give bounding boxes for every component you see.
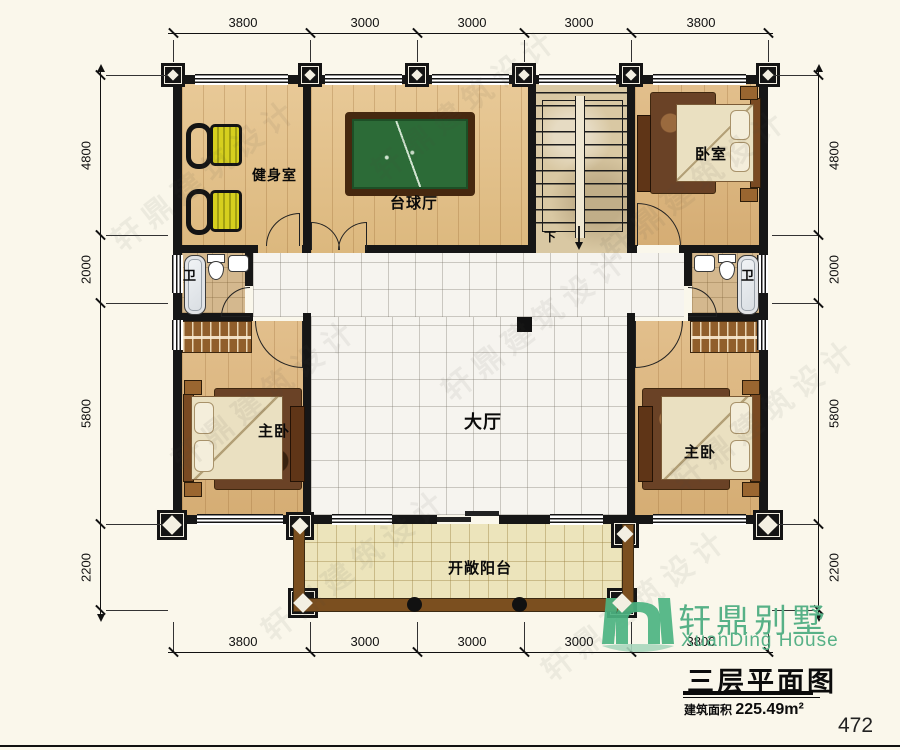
label-billiards: 台球厅 bbox=[390, 192, 438, 213]
stair-center-rail bbox=[575, 96, 585, 238]
plan-title-underline-thin bbox=[683, 697, 820, 698]
dim-top-5: 3800 bbox=[679, 15, 723, 30]
pillow-1-bedroom-top-right bbox=[730, 110, 750, 140]
exercise-bike-seat-2 bbox=[210, 190, 242, 232]
brand-logo-m-icon bbox=[598, 584, 678, 664]
corridor-floor bbox=[253, 253, 684, 317]
dim-top-2: 3000 bbox=[343, 15, 387, 30]
dim-ext-right-4 bbox=[772, 524, 818, 525]
tv-cabinet-master-right bbox=[638, 406, 653, 482]
area-value: 225.49m² bbox=[735, 701, 804, 718]
stair-arrow-line bbox=[578, 226, 580, 242]
label-balcony: 开敞阳台 bbox=[448, 557, 512, 578]
dim-ext-top-2 bbox=[310, 40, 311, 62]
label-master-right: 主卧 bbox=[684, 441, 716, 462]
nightstand-2-master-left bbox=[184, 482, 202, 497]
billiard-table bbox=[345, 112, 475, 196]
window-bottom-4 bbox=[653, 514, 746, 525]
label-gym: 健身室 bbox=[252, 165, 297, 185]
pillow-2-master-left bbox=[194, 440, 214, 472]
label-bath-left: 卫 bbox=[183, 265, 197, 284]
dim-right-3: 5800 bbox=[827, 392, 842, 436]
dim-top-4: 3000 bbox=[557, 15, 601, 30]
dim-ext-left-1 bbox=[106, 75, 168, 76]
dim-top-1: 3800 bbox=[221, 15, 265, 30]
wall-hall-right bbox=[627, 313, 635, 524]
plan-title-underline-thick bbox=[683, 691, 813, 695]
dim-left-1: 4800 bbox=[79, 134, 94, 178]
tv-cabinet-master-left bbox=[290, 406, 305, 482]
nightstand-2-bedroom-top-right bbox=[740, 188, 758, 202]
dim-top-3: 3000 bbox=[450, 15, 494, 30]
dim-ext-bot-4 bbox=[524, 622, 525, 652]
area-line: 建筑面积 225.49m² bbox=[684, 701, 804, 719]
dim-line-left bbox=[100, 72, 101, 615]
window-bottom-3 bbox=[550, 514, 603, 525]
label-hall: 大厅 bbox=[464, 408, 502, 434]
nightstand-1-bedroom-top-right bbox=[740, 86, 758, 100]
wall-mid-3 bbox=[365, 245, 536, 253]
nightstand-1-master-right bbox=[742, 380, 760, 395]
exercise-bike-frame-1 bbox=[186, 123, 212, 169]
wall-gym-billiards bbox=[303, 75, 311, 253]
wall-mid-2 bbox=[302, 245, 311, 253]
dim-left-3: 5800 bbox=[79, 392, 94, 436]
pillow-1-master-left bbox=[194, 402, 214, 434]
dim-ext-left-3 bbox=[106, 303, 168, 304]
pillow-2-master-right bbox=[730, 440, 750, 472]
window-bottom-2 bbox=[332, 514, 392, 525]
column-bottom-right bbox=[753, 510, 783, 540]
cabinet-bedroom-top-right bbox=[637, 115, 651, 192]
label-master-left: 主卧 bbox=[258, 420, 290, 441]
dim-ext-left-5 bbox=[106, 610, 168, 611]
wall-outer-left bbox=[173, 75, 182, 524]
dim-ext-bot-3 bbox=[417, 622, 418, 652]
brand-logo-icon bbox=[598, 584, 678, 664]
dim-ext-top-6 bbox=[768, 40, 769, 62]
dim-ext-right-2 bbox=[772, 235, 818, 236]
dim-ext-right-1 bbox=[772, 75, 818, 76]
dim-ext-top-3 bbox=[417, 40, 418, 62]
dim-bottom-1: 3800 bbox=[221, 634, 265, 649]
balcony-slider-leaf-2 bbox=[465, 511, 499, 516]
column-top-2 bbox=[298, 63, 322, 87]
area-label: 建筑面积 bbox=[684, 703, 732, 717]
stair-arrow-head bbox=[575, 242, 583, 250]
dim-ext-top-5 bbox=[631, 40, 632, 62]
dim-bottom-4: 3000 bbox=[557, 634, 601, 649]
page-number: 472 bbox=[838, 714, 873, 738]
window-left-2 bbox=[172, 320, 183, 350]
dim-right-1: 4800 bbox=[827, 134, 842, 178]
exercise-bike-frame-2 bbox=[186, 189, 212, 235]
label-stairs-down: 下 bbox=[544, 228, 557, 245]
nightstand-2-master-right bbox=[742, 482, 760, 497]
balcony-rail-bottom bbox=[293, 598, 634, 612]
bathtub-left bbox=[184, 255, 206, 315]
exercise-bike-seat-1 bbox=[210, 124, 242, 166]
column-top-3 bbox=[405, 63, 429, 87]
sink-left bbox=[228, 255, 249, 272]
balcony-slider-leaf-1 bbox=[437, 517, 471, 522]
wardrobe-right bbox=[690, 321, 761, 353]
window-bottom-1 bbox=[197, 514, 283, 525]
column-top-5 bbox=[619, 63, 643, 87]
dim-ext-right-3 bbox=[772, 303, 818, 304]
window-top-3 bbox=[432, 74, 509, 85]
dim-ext-top-4 bbox=[524, 40, 525, 62]
wall-mid-4 bbox=[627, 245, 637, 253]
dim-right-4: 2200 bbox=[827, 546, 842, 590]
wall-mid-1 bbox=[173, 245, 258, 253]
dim-line-right bbox=[818, 72, 819, 615]
dim-ext-top-1 bbox=[173, 40, 174, 62]
label-bath-right: 卫 bbox=[741, 265, 755, 284]
column-top-4 bbox=[512, 63, 536, 87]
page-bottom-rule bbox=[0, 745, 900, 747]
dim-right-2: 2000 bbox=[827, 248, 842, 292]
hall-column bbox=[517, 317, 532, 332]
wardrobe-left bbox=[182, 321, 252, 353]
dim-ext-left-4 bbox=[106, 524, 168, 525]
window-right-2 bbox=[757, 320, 768, 350]
dim-ext-left-2 bbox=[106, 235, 168, 236]
window-top-1 bbox=[195, 74, 288, 85]
floor-plan-page: 健身室 台球厅 卧室 卫 卫 主卧 主卧 大厅 开敞阳台 下 3800 3000… bbox=[0, 0, 900, 750]
pillow-1-master-right bbox=[730, 402, 750, 434]
sink-right bbox=[694, 255, 715, 272]
bathtub-right bbox=[737, 255, 759, 315]
window-top-2 bbox=[325, 74, 402, 85]
window-left-1 bbox=[172, 255, 183, 293]
window-top-5 bbox=[653, 74, 746, 85]
brand-name-en: XuanDing House bbox=[681, 630, 839, 652]
dim-left-4: 2200 bbox=[79, 546, 94, 590]
pillow-2-bedroom-top-right bbox=[730, 142, 750, 172]
wall-stair-bedroom bbox=[627, 75, 635, 245]
dim-bottom-2: 3000 bbox=[343, 634, 387, 649]
column-bottom-left bbox=[157, 510, 187, 540]
dim-bottom-3: 3000 bbox=[450, 634, 494, 649]
dim-line-top bbox=[168, 33, 773, 34]
wall-bath-right bbox=[684, 253, 692, 286]
dim-line-bottom bbox=[168, 652, 773, 653]
dim-left-2: 2000 bbox=[79, 248, 94, 292]
window-top-4 bbox=[539, 74, 616, 85]
wall-billiards-stair bbox=[528, 75, 536, 253]
balcony-post-2 bbox=[512, 597, 527, 612]
dim-ext-bot-1 bbox=[173, 622, 174, 652]
dim-ext-bot-2 bbox=[310, 622, 311, 652]
balcony-post-1 bbox=[407, 597, 422, 612]
label-bedroom-top-right: 卧室 bbox=[695, 143, 727, 164]
wall-mid-5 bbox=[679, 245, 768, 253]
nightstand-1-master-left bbox=[184, 380, 202, 395]
